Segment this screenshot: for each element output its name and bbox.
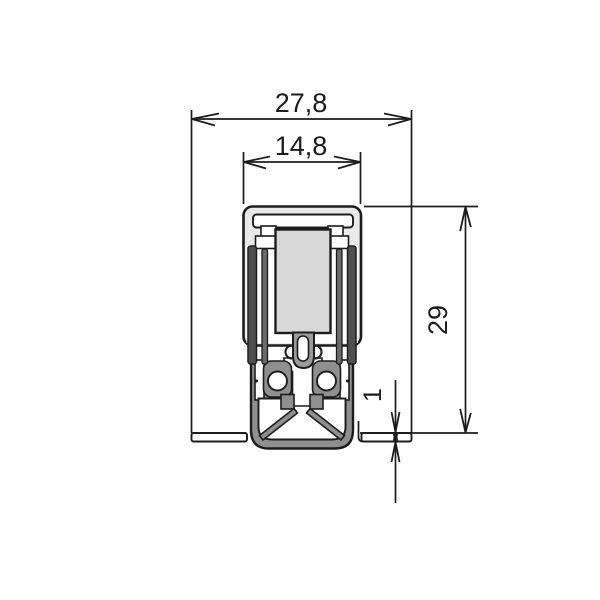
screw-channel-right (317, 372, 336, 391)
side-fin-right-inner (337, 249, 343, 364)
door-bottom-right-flange (362, 433, 412, 442)
dim-label-groove-width: 14,8 (275, 131, 328, 161)
dim-label-outer-width: 27,8 (275, 88, 328, 118)
magnet-block (276, 230, 331, 334)
dim-outer-width: 27,8 (192, 88, 412, 126)
dim-groove-width: 14,8 (244, 131, 361, 204)
plunger-pin (298, 336, 309, 361)
bulb-leg-right (310, 395, 323, 410)
seal-profile (244, 207, 362, 449)
dim-label-profile-height: 29 (423, 305, 453, 335)
tube-hook-left (286, 346, 292, 359)
bulb-leg-left (281, 395, 294, 410)
detail-dot-right (346, 380, 349, 383)
side-fin-left-outer (248, 246, 257, 364)
detail-dot-left (255, 380, 258, 383)
screw-channel-left (268, 372, 287, 391)
side-fin-right-outer (348, 246, 357, 364)
dim-label-floor-gap: 1 (359, 388, 387, 402)
side-fin-left-inner (262, 249, 268, 364)
tube-hook-right (315, 346, 322, 359)
door-bottom-left-flange (192, 433, 248, 442)
door-seal-cross-section-drawing: 27,8 14,8 29 1 (0, 0, 600, 600)
technical-drawing-canvas: 27,8 14,8 29 1 (0, 0, 600, 600)
